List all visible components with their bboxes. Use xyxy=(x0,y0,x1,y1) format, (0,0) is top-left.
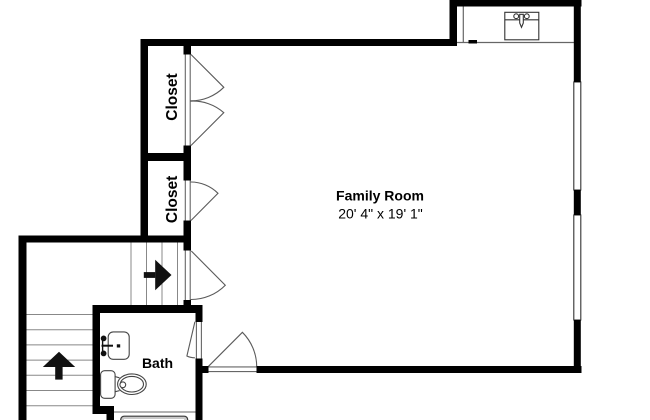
svg-text:Closet: Closet xyxy=(164,176,181,223)
svg-text:Closet: Closet xyxy=(164,73,181,120)
svg-text:Family Room: Family Room xyxy=(336,188,424,204)
svg-text:20' 4" x 19' 1": 20' 4" x 19' 1" xyxy=(338,206,423,222)
svg-text:Bath: Bath xyxy=(142,355,173,371)
